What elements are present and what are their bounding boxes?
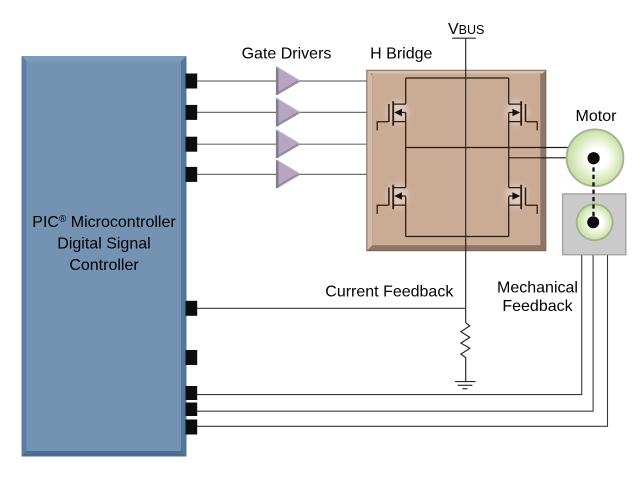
svg-text:PIC® Microcontroller: PIC® Microcontroller: [32, 214, 176, 231]
svg-text:Controller: Controller: [69, 257, 139, 274]
svg-text:Digital Signal: Digital Signal: [57, 236, 150, 253]
svg-text:VBUS: VBUS: [448, 21, 484, 38]
svg-text:Current Feedback: Current Feedback: [325, 284, 454, 301]
svg-text:Gate Drivers: Gate Drivers: [242, 45, 332, 62]
svg-text:Motor: Motor: [576, 108, 618, 125]
svg-text:Feedback: Feedback: [502, 298, 573, 315]
svg-text:Mechanical: Mechanical: [497, 280, 578, 297]
svg-text:H Bridge: H Bridge: [370, 45, 432, 62]
